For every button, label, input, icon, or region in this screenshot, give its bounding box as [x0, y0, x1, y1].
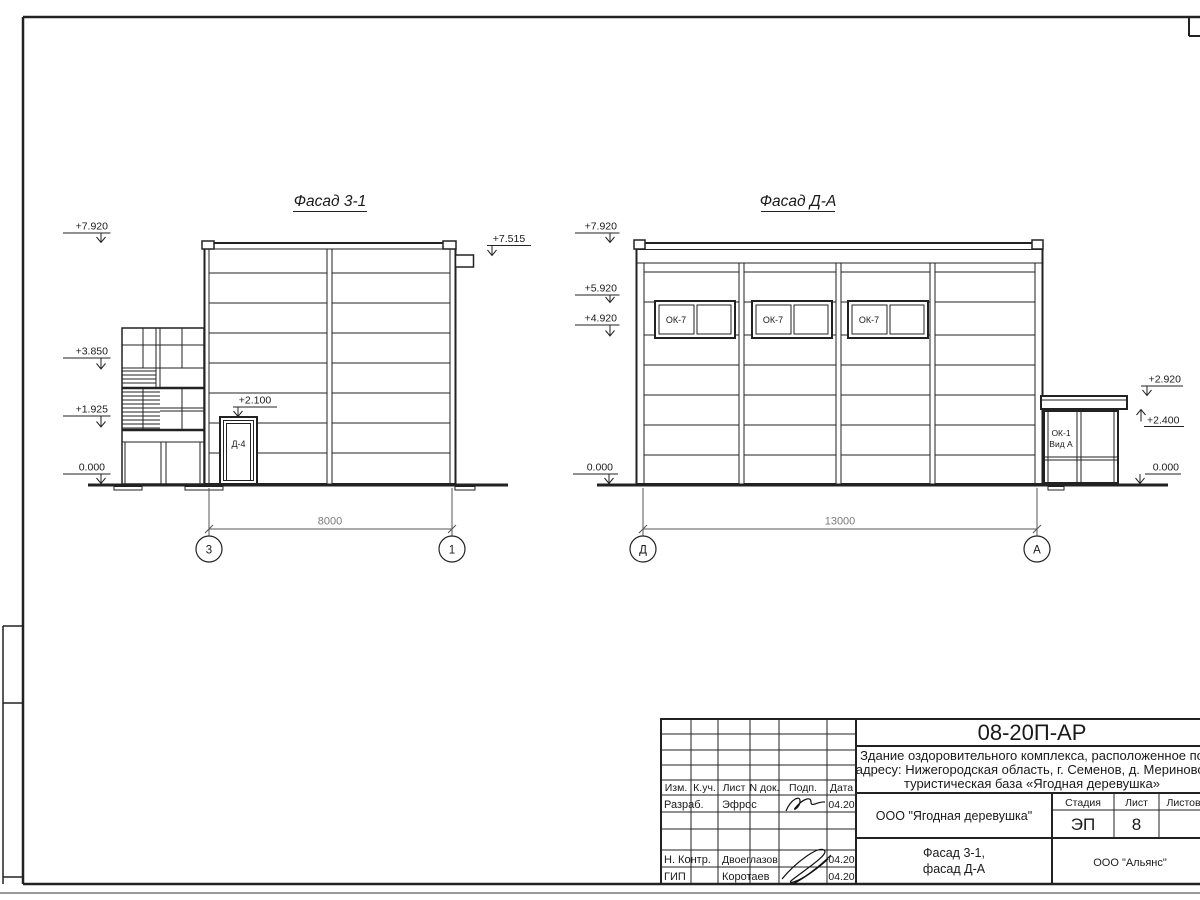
dimensions-3-1: 8000 3 1 — [196, 488, 465, 562]
elev-7920-label: +7.920 — [76, 221, 109, 233]
window-ok7-3: ОК-7 — [848, 301, 928, 338]
col-header-podp: Подп. — [789, 782, 817, 794]
center-post-3-1 — [327, 249, 332, 484]
razrab-date: 04.20 — [828, 799, 854, 811]
elev-da-5920-mark — [575, 295, 620, 303]
dim-8000: 8000 — [318, 516, 342, 528]
post-da-3 — [930, 263, 935, 484]
frame-left-strip — [3, 626, 23, 884]
window-label: ОК-7 — [763, 315, 783, 325]
elev-da-0000L-mark — [573, 474, 618, 484]
post-da-2 — [836, 263, 841, 484]
elev-3850-mark — [63, 358, 111, 369]
facade-d-a: ОК-7 ОК-7 ОК-7 ОК-1 Вид А +7.920 — [573, 193, 1184, 562]
elev-da-0000R-label: 0.000 — [1153, 462, 1179, 474]
nkontr-label: Н. Контр. — [664, 854, 711, 866]
axis-label-a: А — [1033, 545, 1041, 557]
nkontr-date: 04.20 — [828, 854, 854, 866]
elev-da-0000R-mark — [1136, 474, 1182, 484]
signature-razrab — [786, 798, 825, 811]
elev-da-4920-label: +4.920 — [585, 313, 618, 325]
frame-corner-box — [1189, 17, 1200, 36]
sheet-name-line1: Фасад 3-1, — [923, 846, 985, 860]
dim-line-3-1 — [205, 488, 456, 536]
listov-header: Листов — [1166, 797, 1200, 809]
facade-d-a-title: Фасад Д-А — [760, 193, 837, 210]
doc-number: 08-20П-АР — [978, 720, 1087, 745]
gip-name: Коротаев — [722, 871, 770, 883]
facade-3-1: Д-4 +7.920 +3.850 +1.925 0.000 +7.515 +2… — [63, 193, 531, 562]
step-1 — [114, 487, 142, 491]
stage-header: Стадия — [1065, 797, 1101, 809]
elev-da-4920-mark — [575, 325, 620, 336]
door-label: Д-4 — [231, 439, 245, 449]
roof-outlet — [456, 255, 474, 267]
list-value: 8 — [1132, 815, 1141, 834]
elev-da-7920-label: +7.920 — [585, 221, 618, 233]
project-desc-line1: Здание оздоровительного комплекса, распо… — [860, 748, 1200, 763]
elev-da-0000L-label: 0.000 — [587, 462, 613, 474]
razrab-label: Разраб. — [664, 799, 704, 811]
gip-date: 04.20 — [828, 871, 854, 883]
elev-da-2920-mark — [1141, 386, 1183, 396]
razrab-name: Эфрос — [722, 799, 757, 811]
elev-da-5920-label: +5.920 — [585, 283, 618, 295]
window-label: ОК-7 — [666, 315, 686, 325]
elev-7515-mark — [487, 246, 531, 256]
window-ok7-2: ОК-7 — [752, 301, 832, 338]
sheet-name-line2: фасад Д-А — [923, 862, 986, 876]
tower-outline — [122, 328, 204, 484]
post-da-1 — [739, 263, 744, 484]
list-header: Лист — [1125, 797, 1148, 809]
corner-tab-da-right — [1032, 240, 1043, 249]
col-header-data: Дата — [830, 782, 853, 794]
elev-2100-label: +2.100 — [239, 395, 272, 407]
elev-3850-label: +3.850 — [76, 346, 109, 358]
porch: ОК-1 Вид А — [1041, 396, 1127, 483]
organization-name: ООО "Ягодная деревушка" — [876, 809, 1032, 823]
elev-7515-label: +7.515 — [493, 233, 526, 245]
axis-label-1: 1 — [449, 545, 455, 557]
project-desc-line3: туристическая база «Ягодная деревушка» — [904, 776, 1160, 791]
gip-label: ГИП — [664, 871, 686, 883]
corner-tab-da-left — [634, 240, 645, 249]
facade-3-1-title: Фасад 3-1 — [294, 193, 367, 210]
door-d4: Д-4 — [220, 417, 257, 484]
stage-value: ЭП — [1071, 815, 1095, 834]
elev-1925-mark — [63, 416, 111, 427]
contractor-name: ООО "Альянс" — [1093, 857, 1167, 869]
step-3 — [455, 487, 475, 491]
elev-0000-mark — [63, 474, 111, 484]
porch-step — [1048, 487, 1064, 491]
stair-tower — [122, 328, 204, 484]
elev-7920-mark — [63, 233, 111, 243]
drawing-sheet: Д-4 +7.920 +3.850 +1.925 0.000 +7.515 +2… — [0, 0, 1200, 900]
col-header-list: Лист — [723, 782, 746, 794]
elev-da-2400-label: +2.400 — [1147, 415, 1180, 427]
window-ok7-1: ОК-7 — [655, 301, 735, 338]
axis-label-3: 3 — [206, 545, 212, 557]
porch-canopy — [1041, 396, 1127, 409]
col-header-ndok: N док. — [750, 782, 780, 794]
title-block: 08-20П-АР Здание оздоровительного компле… — [661, 719, 1200, 884]
corner-tab-right — [443, 241, 456, 249]
door-frame-outer — [220, 417, 257, 484]
elev-0000-label: 0.000 — [79, 462, 105, 474]
porch-label-line1: ОК-1 — [1051, 428, 1070, 438]
step-2 — [185, 487, 223, 491]
porch-label-line2: Вид А — [1049, 439, 1073, 449]
nkontr-name: Двоеглазов — [722, 854, 778, 866]
corner-tab-left — [202, 241, 214, 249]
elev-da-2920-label: +2.920 — [1149, 374, 1182, 386]
elev-da-7920-mark — [575, 233, 620, 243]
drawing-canvas: Д-4 +7.920 +3.850 +1.925 0.000 +7.515 +2… — [0, 0, 1200, 900]
dim-line-da — [639, 488, 1041, 536]
project-desc-line2: адресу: Нижегородская область, г. Семено… — [856, 762, 1200, 777]
dim-13000: 13000 — [825, 516, 856, 528]
col-header-kuch: К.уч. — [693, 782, 716, 794]
col-header-izm: Изм. — [665, 782, 688, 794]
window-label: ОК-7 — [859, 315, 879, 325]
axis-label-d: Д — [639, 545, 647, 557]
elev-1925-label: +1.925 — [76, 404, 109, 416]
dimensions-da: 13000 Д А — [630, 488, 1050, 562]
